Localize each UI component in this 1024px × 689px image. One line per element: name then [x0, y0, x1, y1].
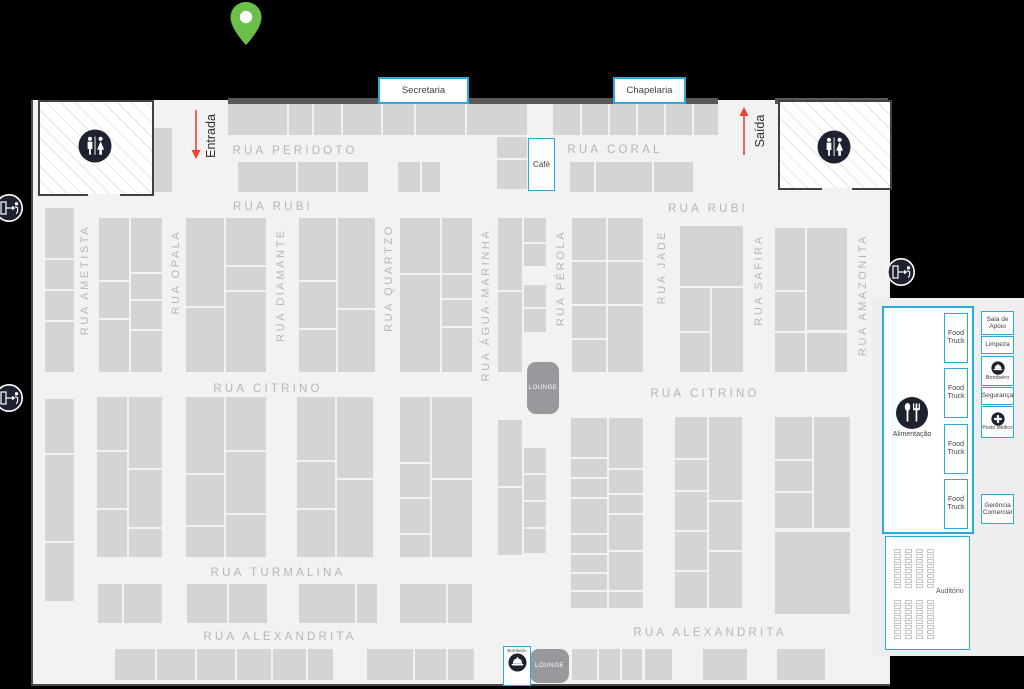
- auditorio-seat: [894, 554, 901, 558]
- street-label: RUA ÁGUA-MARINHA: [480, 229, 492, 382]
- auditorio-seat: [916, 610, 923, 614]
- street-label: RUA SAFIRA: [753, 234, 765, 325]
- restroom-icon: [77, 128, 113, 164]
- booth[interactable]: [337, 480, 373, 557]
- booth[interactable]: [524, 475, 546, 500]
- auditorio-seat: [905, 549, 912, 553]
- booth[interactable]: [226, 218, 266, 265]
- booth[interactable]: [45, 455, 74, 541]
- food-truck-box[interactable]: Food Truck: [944, 479, 968, 529]
- booth[interactable]: [572, 218, 606, 260]
- auditorio-seat: [894, 600, 901, 604]
- booth[interactable]: [226, 452, 266, 513]
- booth[interactable]: [45, 543, 74, 601]
- auditorio-seat: [894, 584, 901, 588]
- auditorio-seat: [916, 564, 923, 568]
- auditorio-seat: [927, 630, 934, 634]
- booth[interactable]: [45, 322, 74, 372]
- booth[interactable]: [524, 309, 546, 332]
- auditorio-seat: [894, 610, 901, 614]
- booth[interactable]: [572, 306, 606, 338]
- auditorio-seat: [927, 549, 934, 553]
- service-sala-de-apoio[interactable]: Sala de Apoio: [981, 311, 1014, 335]
- booth[interactable]: [186, 397, 224, 473]
- auditorio-seat: [905, 559, 912, 563]
- booth[interactable]: [680, 226, 743, 286]
- booth[interactable]: [448, 649, 474, 680]
- food-truck-box[interactable]: Food Truck: [944, 313, 968, 363]
- service-gerencia-comercial[interactable]: Gerência Comercial: [981, 494, 1014, 524]
- auditorio-seat: [927, 569, 934, 573]
- auditorio-seat: [927, 615, 934, 619]
- exit-label: Saída: [753, 115, 767, 148]
- auditorio-seat: [927, 625, 934, 629]
- booth[interactable]: [572, 340, 606, 372]
- street-label: RUA PERIDOTO: [232, 145, 357, 157]
- booth[interactable]: [571, 459, 607, 477]
- auditorio-seat: [927, 584, 934, 588]
- booth[interactable]: [432, 397, 472, 478]
- street-label: RUA RUBI: [233, 201, 313, 213]
- booth[interactable]: [337, 397, 373, 478]
- auditorio-seat: [894, 559, 901, 563]
- entrance-label: Entrada: [204, 114, 218, 158]
- booth[interactable]: [609, 495, 643, 513]
- auditorio-seat: [894, 615, 901, 619]
- auditorio-seat: [905, 600, 912, 604]
- booth[interactable]: [97, 397, 127, 450]
- booth[interactable]: [571, 418, 607, 457]
- auditorio-seat: [916, 554, 923, 558]
- booth[interactable]: [442, 275, 472, 298]
- booth[interactable]: [675, 572, 707, 608]
- booth[interactable]: [524, 218, 546, 242]
- auditorio-seat: [894, 620, 901, 624]
- food-truck-box[interactable]: Food Truck: [944, 368, 968, 418]
- booth[interactable]: [571, 574, 607, 590]
- booth[interactable]: [186, 527, 224, 557]
- booth[interactable]: [608, 262, 643, 304]
- booth[interactable]: [400, 218, 440, 273]
- auditorio-seat: [916, 584, 923, 588]
- auditorio-seat: [905, 554, 912, 558]
- auditorio-seat: [916, 569, 923, 573]
- booth[interactable]: [709, 502, 742, 550]
- booth[interactable]: [299, 282, 336, 328]
- auditorio-seat: [905, 574, 912, 578]
- booth[interactable]: [498, 292, 522, 372]
- auditorio-seat: [894, 569, 901, 573]
- booth[interactable]: [777, 649, 825, 680]
- booth[interactable]: [675, 532, 707, 570]
- auditorio-seat: [894, 605, 901, 609]
- booth[interactable]: [498, 488, 522, 555]
- booth[interactable]: [498, 218, 522, 290]
- booth[interactable]: [297, 397, 335, 460]
- street-label: RUA AMETISTA: [79, 225, 91, 335]
- booth[interactable]: [675, 417, 707, 458]
- auditorio-seat: [927, 554, 934, 558]
- auditorio-seat: [905, 625, 912, 629]
- booth[interactable]: [442, 218, 472, 273]
- booth[interactable]: [299, 218, 336, 280]
- exit-arrow-icon: [737, 105, 751, 159]
- service-bombeiro[interactable]: Bombeiro: [981, 356, 1014, 386]
- service-limpeza[interactable]: Limpeza: [981, 336, 1014, 354]
- booth[interactable]: [228, 104, 287, 135]
- auditorio-seat: [916, 625, 923, 629]
- auditorio-seat: [927, 610, 934, 614]
- booth[interactable]: [129, 397, 162, 468]
- booth[interactable]: [553, 104, 580, 135]
- booth[interactable]: [45, 399, 74, 453]
- booth[interactable]: [524, 529, 546, 553]
- booth[interactable]: [609, 515, 643, 550]
- food-court-icon: [895, 396, 929, 430]
- booth[interactable]: [45, 291, 74, 320]
- auditorio-label: Auditório: [936, 588, 964, 595]
- booth[interactable]: [308, 649, 333, 680]
- auditorio-seat: [894, 635, 901, 639]
- booth[interactable]: [273, 649, 306, 680]
- booth[interactable]: [99, 320, 129, 372]
- booth[interactable]: [645, 649, 672, 680]
- auditorio-seat: [916, 579, 923, 583]
- auditorio-seat: [894, 574, 901, 578]
- service-label: Sala de Apoio: [982, 316, 1013, 331]
- booth[interactable]: [571, 479, 607, 497]
- booth[interactable]: [571, 535, 607, 553]
- booth[interactable]: [237, 649, 271, 680]
- auditorio-seat: [916, 605, 923, 609]
- booth[interactable]: [187, 584, 227, 623]
- service-label: Gerência Comercial: [982, 502, 1013, 517]
- street-label: RUA QUARTZO: [383, 224, 395, 332]
- lounge-label: LOUNGE: [529, 385, 558, 391]
- booth[interactable]: [675, 492, 707, 530]
- food-truck-label: Food Truck: [945, 385, 967, 401]
- auditorio-seat: [927, 600, 934, 604]
- street-label: RUA PÉROLA: [555, 230, 567, 326]
- booth[interactable]: [666, 104, 692, 135]
- auditorio-seat: [927, 574, 934, 578]
- street-label: RUA ALEXANDRITA: [633, 627, 786, 639]
- auditorio-seat: [927, 605, 934, 609]
- auditorio-seat: [927, 579, 934, 583]
- booth[interactable]: [675, 460, 707, 490]
- medical-cross-icon: [991, 412, 1005, 426]
- booth[interactable]: [157, 649, 195, 680]
- booth[interactable]: [709, 552, 742, 608]
- lounge-box[interactable]: LOUNGE: [527, 362, 559, 414]
- booth[interactable]: [571, 499, 607, 533]
- booth[interactable]: [299, 584, 355, 623]
- auditorio-seat: [905, 630, 912, 634]
- booth[interactable]: [498, 420, 522, 486]
- street-label: RUA CITRINO: [650, 388, 759, 400]
- booth[interactable]: [226, 397, 266, 450]
- booth[interactable]: [814, 417, 850, 528]
- auditorio-seat: [927, 559, 934, 563]
- booth[interactable]: [124, 584, 162, 623]
- auditorio-seat: [916, 635, 923, 639]
- auditorio-seat: [916, 559, 923, 563]
- street-label: RUA JADE: [656, 230, 668, 305]
- service-label: Segurança: [982, 392, 1013, 399]
- booth[interactable]: [680, 333, 710, 372]
- booth[interactable]: [343, 104, 381, 135]
- booth[interactable]: [524, 285, 546, 307]
- street-label: RUA AMAZONITA: [857, 234, 869, 356]
- booth[interactable]: [654, 162, 693, 192]
- booth[interactable]: [298, 162, 336, 192]
- booth[interactable]: [97, 510, 127, 557]
- booth[interactable]: [197, 649, 235, 680]
- chapelaria-label: Chapelaria: [627, 85, 673, 96]
- food-truck-label: Food Truck: [945, 496, 967, 512]
- booth[interactable]: [115, 649, 155, 680]
- booth[interactable]: [807, 228, 847, 330]
- auditorio-seat: [916, 574, 923, 578]
- booth[interactable]: [400, 397, 430, 462]
- booth[interactable]: [152, 128, 172, 192]
- auditorio-seat: [905, 635, 912, 639]
- auditorio-seat: [894, 579, 901, 583]
- booth[interactable]: [400, 535, 430, 557]
- booth[interactable]: [442, 300, 472, 326]
- secretaria-label: Secretaria: [402, 85, 445, 96]
- booth[interactable]: [238, 162, 296, 192]
- booth[interactable]: [497, 137, 527, 158]
- auditorio-seat: [916, 615, 923, 619]
- auditorio-seat: [905, 579, 912, 583]
- booth[interactable]: [596, 162, 652, 192]
- auditorio-seat: [916, 549, 923, 553]
- booth[interactable]: [99, 282, 129, 318]
- booth[interactable]: [807, 333, 847, 372]
- lounge-label: LOUNGE: [535, 663, 564, 669]
- booth[interactable]: [680, 288, 710, 331]
- booth[interactable]: [131, 218, 162, 272]
- food-truck-label: Food Truck: [945, 441, 967, 457]
- booth[interactable]: [229, 584, 267, 623]
- booth[interactable]: [299, 330, 336, 372]
- booth[interactable]: [129, 470, 162, 527]
- booth[interactable]: [45, 208, 74, 258]
- street-label: RUA RUBI: [668, 203, 748, 215]
- emergency-exit-icon: [0, 383, 24, 413]
- booth[interactable]: [314, 104, 341, 135]
- restroom-door-gap: [88, 194, 120, 196]
- street-label: RUA ALEXANDRITA: [203, 631, 356, 643]
- booth[interactable]: [357, 584, 377, 623]
- booth[interactable]: [524, 244, 546, 266]
- emergency-exit-icon: [0, 193, 24, 223]
- booth[interactable]: [400, 584, 446, 623]
- auditorio-seat: [916, 600, 923, 604]
- booth[interactable]: [415, 649, 446, 680]
- booth[interactable]: [400, 464, 430, 497]
- booth[interactable]: [622, 649, 642, 680]
- booth[interactable]: [400, 499, 430, 533]
- booth[interactable]: [570, 162, 594, 192]
- booth[interactable]: [608, 306, 643, 372]
- cafe-box[interactable]: Café: [528, 138, 555, 191]
- booth[interactable]: [609, 552, 643, 590]
- service-label: Bombeiro: [986, 375, 1010, 381]
- booth[interactable]: [775, 292, 805, 331]
- booth[interactable]: [775, 417, 812, 459]
- auditorio-seat: [905, 564, 912, 568]
- service-seguranca[interactable]: Segurança: [981, 387, 1014, 405]
- alimentacao-label: Alimentação: [884, 431, 940, 438]
- booth[interactable]: [129, 529, 162, 557]
- booth[interactable]: [186, 475, 224, 525]
- entrance-arrow-icon: [189, 107, 203, 161]
- booth[interactable]: [572, 649, 597, 680]
- booth[interactable]: [432, 480, 472, 557]
- booth[interactable]: [572, 262, 606, 304]
- booth[interactable]: [367, 649, 413, 680]
- booth[interactable]: [467, 104, 527, 135]
- booth[interactable]: [98, 584, 122, 623]
- booth[interactable]: [599, 649, 620, 680]
- auditorio-seat: [905, 605, 912, 609]
- auditorio-seat: [894, 625, 901, 629]
- street-label: RUA DIAMANTE: [275, 228, 287, 342]
- secretaria-box[interactable]: Secretaria: [378, 77, 469, 104]
- auditorio-seat: [905, 615, 912, 619]
- emergency-exit-icon: [886, 257, 916, 287]
- booth[interactable]: [131, 274, 162, 299]
- service-label: Posto Médico: [982, 426, 1012, 432]
- booth[interactable]: [638, 104, 664, 135]
- booth[interactable]: [131, 301, 162, 329]
- service-posto-medico[interactable]: Posto Médico: [981, 406, 1014, 438]
- booth[interactable]: [97, 452, 127, 508]
- booth[interactable]: [703, 649, 747, 680]
- booth[interactable]: [571, 555, 607, 572]
- booth[interactable]: [775, 532, 850, 614]
- booth[interactable]: [400, 275, 440, 372]
- booth[interactable]: [99, 218, 129, 280]
- booth[interactable]: [383, 104, 414, 135]
- booth[interactable]: [582, 104, 608, 135]
- auditorio-seat: [894, 630, 901, 634]
- auditorio-seat: [905, 620, 912, 624]
- restroom-icon: [816, 129, 852, 165]
- auditorio-seat: [905, 584, 912, 588]
- street-label: RUA OPALA: [170, 230, 182, 315]
- booth[interactable]: [45, 260, 74, 289]
- booth[interactable]: [775, 493, 812, 528]
- booth[interactable]: [226, 292, 266, 372]
- location-pin-icon: [226, 0, 266, 50]
- auditorio-seat: [927, 620, 934, 624]
- chapelaria-box[interactable]: Chapelaria: [613, 77, 686, 104]
- booth[interactable]: [609, 592, 643, 608]
- booth[interactable]: [694, 104, 718, 135]
- booth[interactable]: [226, 515, 266, 557]
- booth[interactable]: [448, 584, 472, 623]
- booth[interactable]: [609, 470, 643, 493]
- booth[interactable]: [398, 162, 420, 192]
- auditorio-seat: [927, 635, 934, 639]
- booth[interactable]: [297, 510, 335, 557]
- auditorio-seat: [916, 630, 923, 634]
- booth[interactable]: [186, 218, 224, 306]
- street-label: RUA TURMALINA: [211, 567, 346, 579]
- bombeiro-station-box[interactable]: Bombeiro: [503, 646, 531, 686]
- booth[interactable]: [416, 104, 465, 135]
- booth[interactable]: [442, 328, 472, 372]
- auditorio-seat: [894, 549, 901, 553]
- lounge-box[interactable]: LOUNGE: [530, 649, 569, 683]
- firefighter-helmet-icon: [508, 653, 527, 672]
- firefighter-helmet-icon: [991, 361, 1005, 375]
- booth[interactable]: [338, 310, 375, 372]
- food-truck-box[interactable]: Food Truck: [944, 424, 968, 474]
- booth[interactable]: [186, 308, 224, 372]
- booth[interactable]: [338, 162, 368, 192]
- booth[interactable]: [775, 228, 805, 290]
- service-label: Limpeza: [985, 341, 1010, 348]
- booth[interactable]: [775, 333, 805, 372]
- booth[interactable]: [709, 417, 742, 500]
- booth[interactable]: [571, 592, 607, 608]
- booth[interactable]: [297, 462, 335, 508]
- booth[interactable]: [524, 448, 546, 473]
- auditorio-seat: [905, 610, 912, 614]
- street-label: RUA CITRINO: [213, 383, 322, 395]
- booth[interactable]: [609, 418, 643, 468]
- booth[interactable]: [338, 218, 375, 308]
- booth[interactable]: [608, 218, 643, 260]
- booth[interactable]: [524, 502, 546, 527]
- booth[interactable]: [610, 104, 636, 135]
- cafe-label: Café: [533, 160, 550, 169]
- auditorio-seat: [927, 564, 934, 568]
- booth[interactable]: [289, 104, 312, 135]
- booth[interactable]: [131, 331, 162, 372]
- venue-floor-plan: RUA PERIDOTORUA CORALRUA RUBIRUA RUBIRUA…: [0, 0, 1024, 689]
- auditorio-seat: [905, 569, 912, 573]
- auditorio-seat: [894, 564, 901, 568]
- booth[interactable]: [497, 160, 527, 189]
- booth[interactable]: [712, 288, 743, 372]
- street-label: RUA CORAL: [567, 144, 662, 156]
- booth[interactable]: [226, 267, 266, 290]
- food-truck-label: Food Truck: [945, 330, 967, 346]
- restroom-door-gap: [822, 188, 852, 190]
- booth[interactable]: [422, 162, 440, 192]
- auditorio-seat: [916, 620, 923, 624]
- booth[interactable]: [775, 461, 812, 491]
